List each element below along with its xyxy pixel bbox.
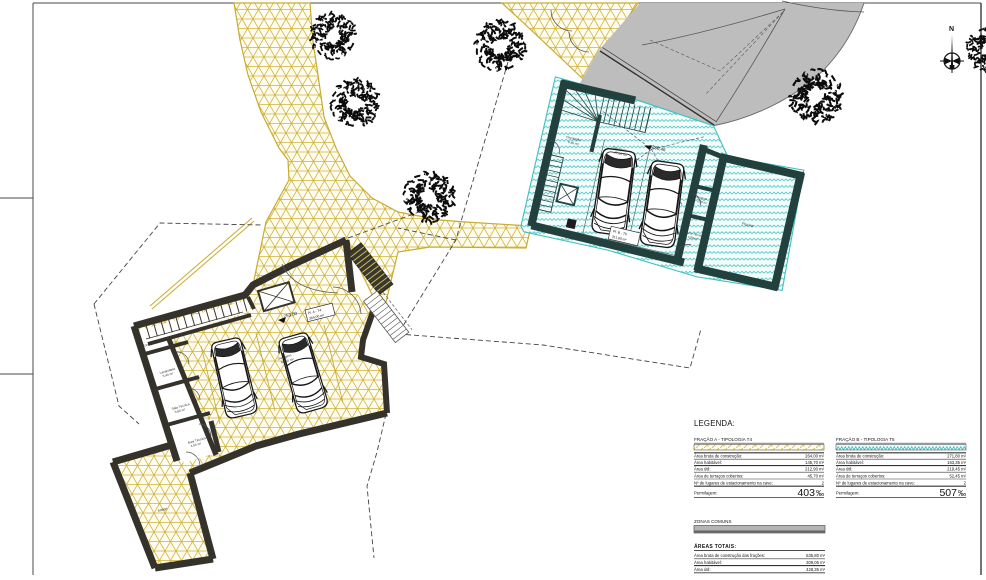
svg-text:N: N: [949, 26, 954, 33]
svg-text:Área habitável:: Área habitável:: [694, 560, 722, 565]
svg-text:Área de terraços cobertos:: Área de terraços cobertos:: [836, 473, 885, 478]
svg-text:428,35 m²: 428,35 m²: [806, 567, 825, 572]
svg-text:Área bruta de construção:: Área bruta de construção:: [836, 454, 884, 459]
svg-text:Permilagem:: Permilagem:: [694, 491, 718, 496]
svg-text:FRAÇÃO A - TIPOLOGIA T4: FRAÇÃO A - TIPOLOGIA T4: [694, 436, 752, 442]
svg-text:LEGENDA:: LEGENDA:: [694, 419, 735, 428]
svg-text:219,45 m²: 219,45 m²: [947, 467, 966, 472]
svg-text:‰: ‰: [958, 489, 966, 498]
svg-text:Área bruta de construção das f: Área bruta de construção das frações:: [694, 553, 765, 558]
svg-text:Nº de lugares de estacionament: Nº de lugares de estacionamento na cave:: [694, 481, 773, 486]
svg-text:52,45 m²: 52,45 m²: [949, 473, 966, 478]
svg-text:212,90 m²: 212,90 m²: [805, 467, 824, 472]
svg-text:145,70 m²: 145,70 m²: [805, 460, 824, 465]
svg-text:163,35 m²: 163,35 m²: [947, 460, 966, 465]
svg-text:Área útil:: Área útil:: [836, 467, 853, 472]
svg-text:ÁREAS TOTAIS:: ÁREAS TOTAIS:: [694, 543, 736, 550]
svg-text:FRAÇÃO B - TIPOLOGIA T5: FRAÇÃO B - TIPOLOGIA T5: [836, 436, 895, 442]
svg-text:Área útil:: Área útil:: [694, 567, 711, 572]
svg-text:Área habitável:: Área habitável:: [694, 460, 722, 465]
svg-text:Área útil:: Área útil:: [694, 467, 711, 472]
svg-text:Área bruta de construção:: Área bruta de construção:: [694, 454, 742, 459]
svg-text:Nº de lugares de estacionament: Nº de lugares de estacionamento na cave:: [836, 481, 915, 486]
svg-text:45,70 m²: 45,70 m²: [807, 473, 824, 478]
svg-text:Permilagem:: Permilagem:: [836, 491, 860, 496]
svg-text:Área de terraços cobertos:: Área de terraços cobertos:: [694, 473, 743, 478]
svg-text:264,00 m²: 264,00 m²: [805, 454, 824, 459]
svg-text:309,05 m²: 309,05 m²: [806, 560, 825, 565]
svg-text:‰: ‰: [816, 489, 824, 498]
svg-text:535,80 m²: 535,80 m²: [806, 553, 825, 558]
svg-text:ZONAS COMUNS: ZONAS COMUNS: [694, 519, 732, 524]
svg-text:Área habitável:: Área habitável:: [836, 460, 864, 465]
svg-text:271,80 m²: 271,80 m²: [947, 454, 966, 459]
